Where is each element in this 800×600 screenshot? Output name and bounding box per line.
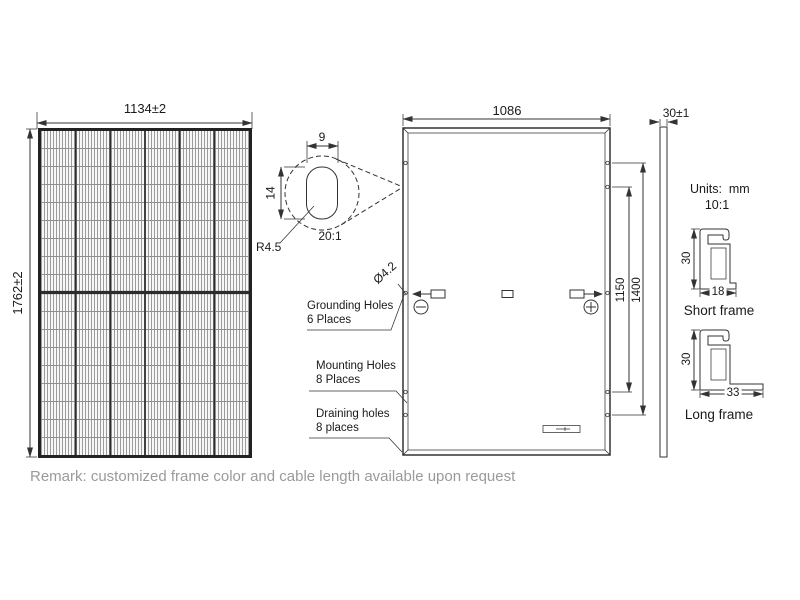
units-label: Units: mm bbox=[690, 183, 750, 196]
grounding-holes-count: 6 Places bbox=[307, 314, 351, 326]
long-frame-width-text: 33 bbox=[725, 387, 742, 399]
front-width-dim-text: 1134±2 bbox=[124, 102, 166, 116]
draining-holes-label: Draining holes bbox=[316, 408, 390, 420]
mount-span-outer-text: 1400 bbox=[631, 277, 643, 303]
detail-slot-width-text: 9 bbox=[319, 131, 326, 144]
grounding-holes-label: Grounding Holes bbox=[307, 300, 393, 312]
short-frame-height-text: 30 bbox=[681, 252, 693, 265]
thickness-dim-text: 30±1 bbox=[663, 107, 690, 120]
frame-scale-label: 10:1 bbox=[705, 199, 729, 212]
drawing-linework bbox=[0, 0, 800, 600]
mount-span-inner-text: 1150 bbox=[615, 278, 627, 303]
short-frame-width-text: 18 bbox=[710, 286, 727, 298]
front-height-dim-text: 1762±2 bbox=[11, 271, 25, 314]
back-width-dim-text: 1086 bbox=[493, 104, 522, 118]
junction-box bbox=[502, 291, 513, 298]
plus-in-circle-icon bbox=[584, 300, 598, 314]
detail-radius-text: R4.5 bbox=[256, 241, 281, 254]
side-view bbox=[651, 119, 676, 457]
back-view bbox=[403, 128, 610, 455]
mounting-holes-label: Mounting Holes bbox=[316, 360, 396, 372]
draining-holes-count: 8 places bbox=[316, 422, 359, 434]
remark-text: Remark: customized frame color and cable… bbox=[30, 469, 515, 485]
mounting-holes-count: 8 Places bbox=[316, 374, 360, 386]
detail-slot-height-text: 14 bbox=[265, 186, 278, 199]
short-frame-label: Short frame bbox=[684, 304, 755, 318]
detail-scale-text: 20:1 bbox=[318, 230, 341, 243]
solar-panel-drawing: 1134±2 1762±2 9 14 R4.5 20:1 1086 Ø4.2 G… bbox=[0, 0, 800, 600]
detail-view bbox=[280, 141, 411, 243]
long-frame-label: Long frame bbox=[685, 408, 753, 422]
nameplate-label bbox=[543, 426, 580, 433]
front-height-dimension bbox=[26, 129, 37, 457]
long-frame-height-text: 30 bbox=[681, 353, 693, 366]
front-view-grid-accents bbox=[41, 131, 249, 455]
